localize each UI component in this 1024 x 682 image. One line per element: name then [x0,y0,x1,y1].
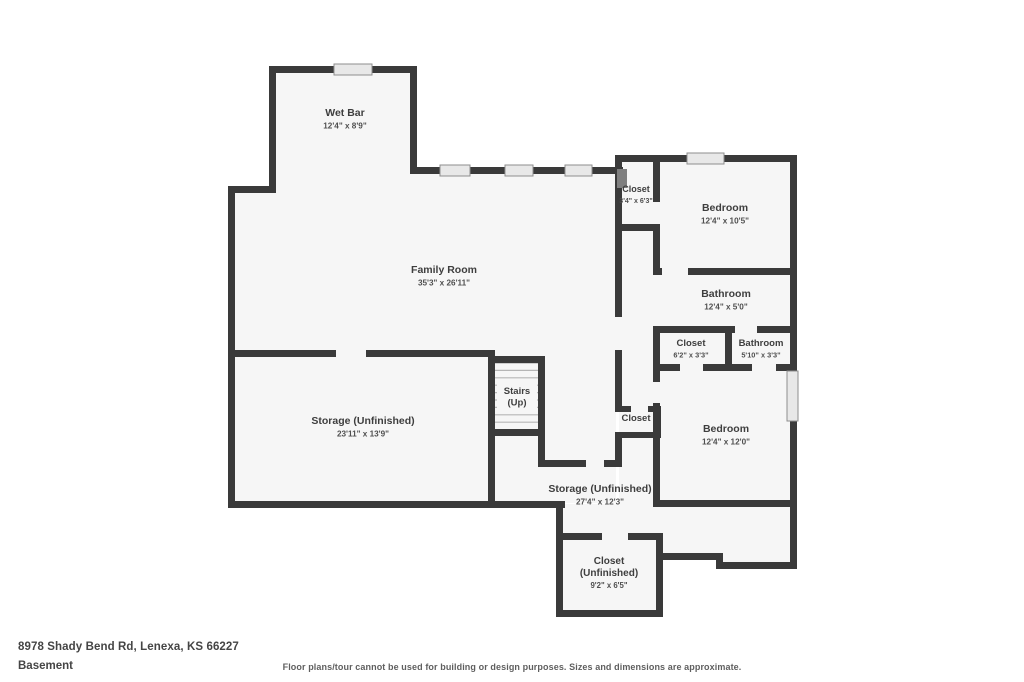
wall-segment [776,364,797,371]
wall-segment [538,356,545,467]
property-address: 8978 Shady Bend Rd, Lenexa, KS 66227 [18,641,239,653]
room-label: Bathroom5'10" x 3'3" [739,338,784,360]
wall-segment [653,364,680,371]
wall-segment [488,356,545,363]
wall-segment [366,350,495,357]
wall-segment [410,66,417,171]
floorplan-page: Wet Bar12'4" x 8'9"Family Room35'3" x 26… [0,0,1024,682]
room-floor [720,504,791,564]
room-label: Closet6'2" x 3'3" [673,338,709,360]
wall-segment [688,268,797,275]
room-label: Wet Bar12'4" x 8'9" [323,107,367,131]
window [440,165,470,176]
wall-segment [725,326,732,371]
wall-segment [269,66,276,193]
wall-segment [228,350,235,508]
window [787,371,798,421]
wall-segment [757,326,797,333]
room-label: Stairs(Up) [504,386,530,409]
wall-segment [538,460,586,467]
window [687,153,724,164]
wall-segment [556,501,563,617]
floorplan-canvas: Wet Bar12'4" x 8'9"Family Room35'3" x 26… [0,0,1024,682]
wall-segment [556,610,663,617]
window [334,64,372,75]
wall-segment [556,533,602,540]
wall-segment [656,533,663,617]
wall-segment [615,350,622,410]
room-label: Family Room35'3" x 26'11" [411,264,477,288]
room-floor [231,353,491,503]
wall-segment [653,326,735,333]
disclaimer-text: Floor plans/tour cannot be used for buil… [0,662,1024,672]
wall-segment [716,562,793,569]
wall-segment [488,429,543,436]
wall-segment [228,186,235,357]
wall-segment [615,406,631,412]
wall-segment [653,155,660,202]
wall-segment [653,224,660,275]
wall-segment [228,501,565,508]
wall-segment [228,350,336,357]
wall-segment [653,268,662,275]
wall-segment [228,186,276,193]
window [505,165,533,176]
wall-segment [653,326,660,382]
wall-segment [615,433,622,467]
room-label: Closet [621,413,651,424]
wall-segment [660,553,723,560]
wall-segment [654,406,661,438]
window [565,165,592,176]
room-floor [491,353,616,503]
room-label: Bedroom12'4" x 12'0" [702,423,750,447]
room-label: Bedroom12'4" x 10'5" [701,202,749,226]
room-label: Bathroom12'4" x 5'0" [701,288,751,312]
wall-segment [653,500,797,507]
wall-segment [615,224,660,231]
